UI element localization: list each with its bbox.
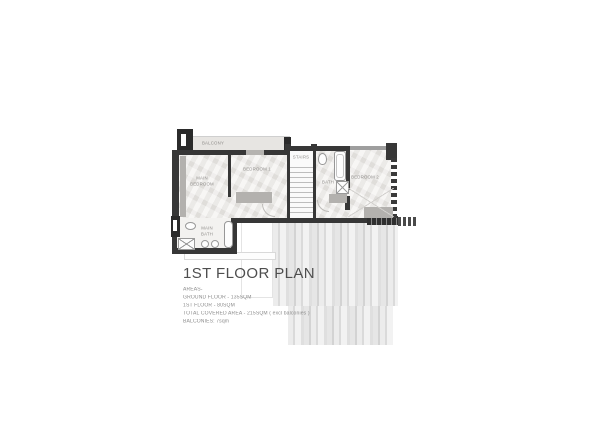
chimney-top-notch [181,134,186,146]
balcony-door-gap [246,150,264,155]
stairs-pier-left [285,144,291,151]
main-bath-tub-icon [224,221,233,248]
room-label-main-bath: MAIN BATH [198,227,217,238]
floor-plan-sheet: BALCONY MAIN BEDROOM BEDROOM 1 STAIRS BA… [0,0,600,424]
room-label-bath: BATH [322,180,334,185]
room-label-stairs: STAIRS [293,155,309,160]
partition-mainbedroom-bedroom1 [228,152,231,197]
main-bath-sink-right-icon [211,240,219,248]
bedroom2-window-sill [350,146,387,150]
page-title: 1ST FLOOR PLAN [183,265,315,282]
pergola-beam-band [398,217,417,226]
bath-vanity [329,194,347,203]
terrace-gap-outline [241,222,273,298]
room-label-main-bedroom: MAIN BEDROOM [188,177,217,188]
stairs-pier-right [311,144,317,151]
chimney-bottom-notch [173,220,177,231]
note-balconies: BALCONIES: 7sqm [183,319,229,324]
bathtub-inner-line [336,154,344,178]
main-bath-sink-left-icon [201,240,209,248]
toilet-icon [318,153,327,165]
note-ground-floor: GROUND FLOOR - 135SQM [183,295,252,300]
main-bath-toilet-icon [185,222,196,230]
note-total-covered-area: TOTAL COVERED AREA - 215SQM ( excl balco… [183,311,310,316]
stairs-treads [290,163,313,213]
bedroom2-annotation-lines [348,188,394,217]
note-first-floor: 1ST FLOOR - 80SQM [183,303,235,308]
stairs-wall-right [313,146,316,218]
bedroom1-bed [236,192,272,203]
room-label-bedroom1: BEDROOM 1 [243,167,271,172]
main-bedroom-wardrobe [180,156,186,217]
wall-left [172,150,179,223]
room-label-bedroom2: BEDROOM 2 [351,175,379,180]
main-bath-shower-icon [178,238,195,250]
room-label-balcony: BALCONY [202,141,224,146]
areas-heading: AREAS- [183,287,203,292]
